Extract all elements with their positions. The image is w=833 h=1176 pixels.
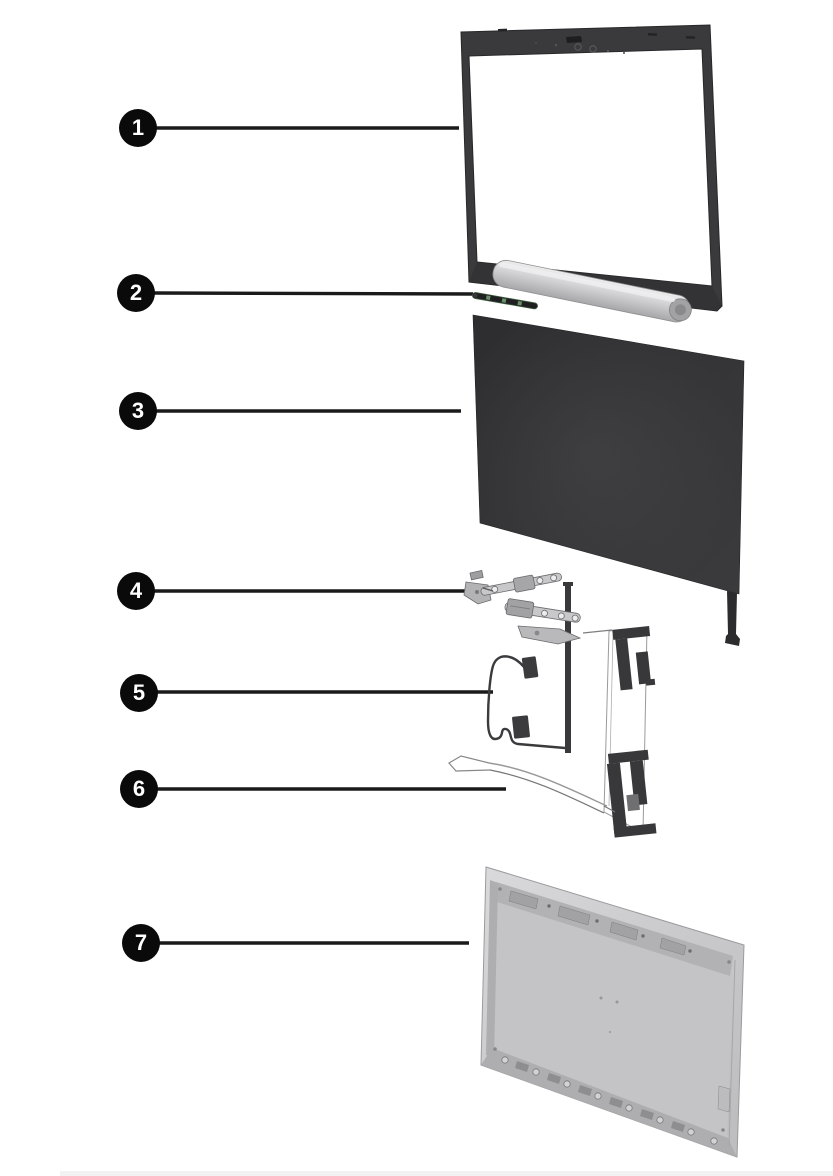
callout-2: 2 [117,274,155,312]
callout-2-number: 2 [130,282,142,304]
callout-6-number: 6 [133,778,145,800]
callout-7: 7 [122,924,160,962]
leader-lines [154,128,506,943]
display-cable-run [563,582,573,753]
leader-line-2 [154,293,473,294]
callout-1-number: 1 [132,117,144,139]
display-back-cover-art [481,867,744,1157]
callout-5-number: 5 [133,682,145,704]
cable-connector-top [522,656,539,679]
callout-4: 4 [117,572,155,610]
wireless-antenna-kit-art [449,626,656,838]
panel-sheen [473,315,744,594]
antenna-module-bottom [606,750,657,838]
callout-1: 1 [119,109,157,147]
page-footer-rule [60,1171,833,1176]
panel-connector-tab [725,591,740,646]
callout-3-number: 3 [132,400,144,422]
cover-side-bracket [718,1086,730,1112]
antenna-cables [449,756,615,813]
exploded-parts-diagram-page: 1 2 3 4 5 6 7 [0,0,833,1176]
display-camera-cable-art [488,656,565,748]
display-panel-art [473,315,744,646]
sensor-board-art [472,292,538,309]
callout-5: 5 [120,674,158,712]
callout-6: 6 [120,770,158,808]
antenna-module-top [612,626,655,691]
cable-connector-mid [512,715,530,739]
callout-7-number: 7 [135,932,147,954]
hinge-kit-art [464,569,581,644]
callout-4-number: 4 [130,580,142,602]
display-bezel-art [461,25,722,325]
callout-3: 3 [119,392,157,430]
